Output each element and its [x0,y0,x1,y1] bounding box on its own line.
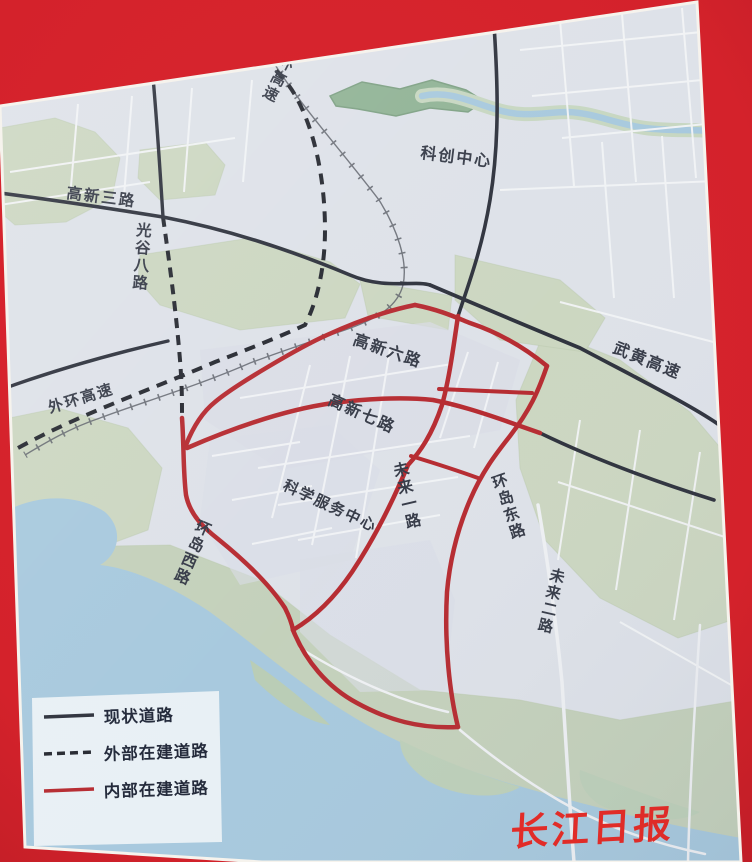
photo-sheen-overlay [0,0,752,862]
map-panel: 高新三路 光谷八路 环高速 科创中心 外环高速 高新六路 高新七路 科学服务中心… [0,0,752,862]
map-photo: 高新三路 光谷八路 环高速 科创中心 外环高速 高新六路 高新七路 科学服务中心… [0,0,752,862]
map-poster-photo: 高新三路 光谷八路 环高速 科创中心 外环高速 高新六路 高新七路 科学服务中心… [0,0,752,862]
